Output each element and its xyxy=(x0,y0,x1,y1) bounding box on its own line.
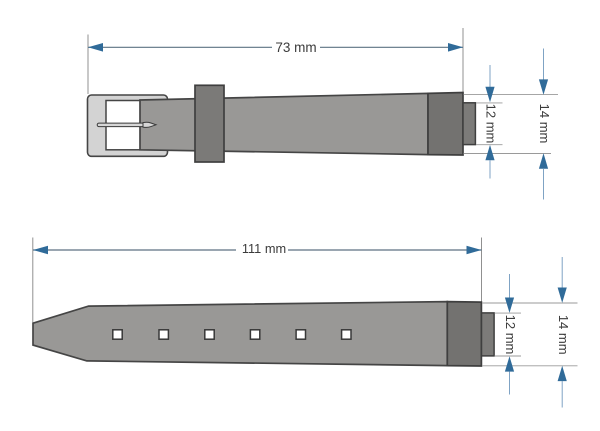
svg-text:73 mm: 73 mm xyxy=(275,40,316,55)
svg-text:12 mm: 12 mm xyxy=(503,315,518,355)
svg-text:12 mm: 12 mm xyxy=(484,104,499,144)
svg-text:14 mm: 14 mm xyxy=(537,104,552,144)
svg-text:14 mm: 14 mm xyxy=(556,315,571,355)
svg-text:111 mm: 111 mm xyxy=(242,241,286,256)
